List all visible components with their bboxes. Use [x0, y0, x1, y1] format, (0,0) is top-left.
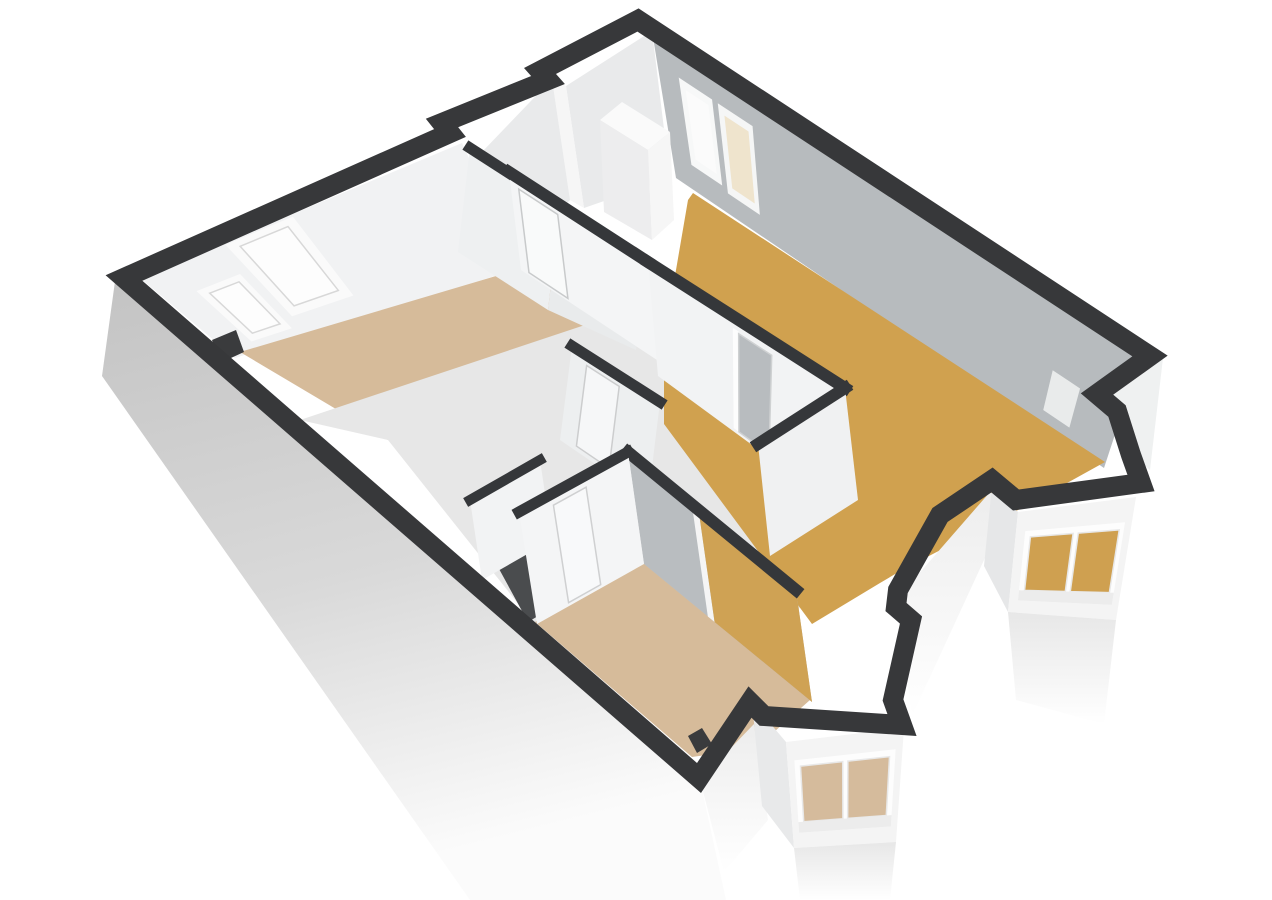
floorplan-svg — [0, 0, 1272, 900]
bay-bottom-glass-left — [800, 762, 842, 822]
bay-window-bottom-below — [794, 842, 896, 900]
floorplan-3d-render — [0, 0, 1272, 900]
closet-box-side — [648, 132, 674, 240]
bay-bottom-glass-right — [848, 757, 890, 819]
bay-window-right-below — [1008, 612, 1116, 724]
bay-right-glass-left — [1025, 533, 1074, 591]
